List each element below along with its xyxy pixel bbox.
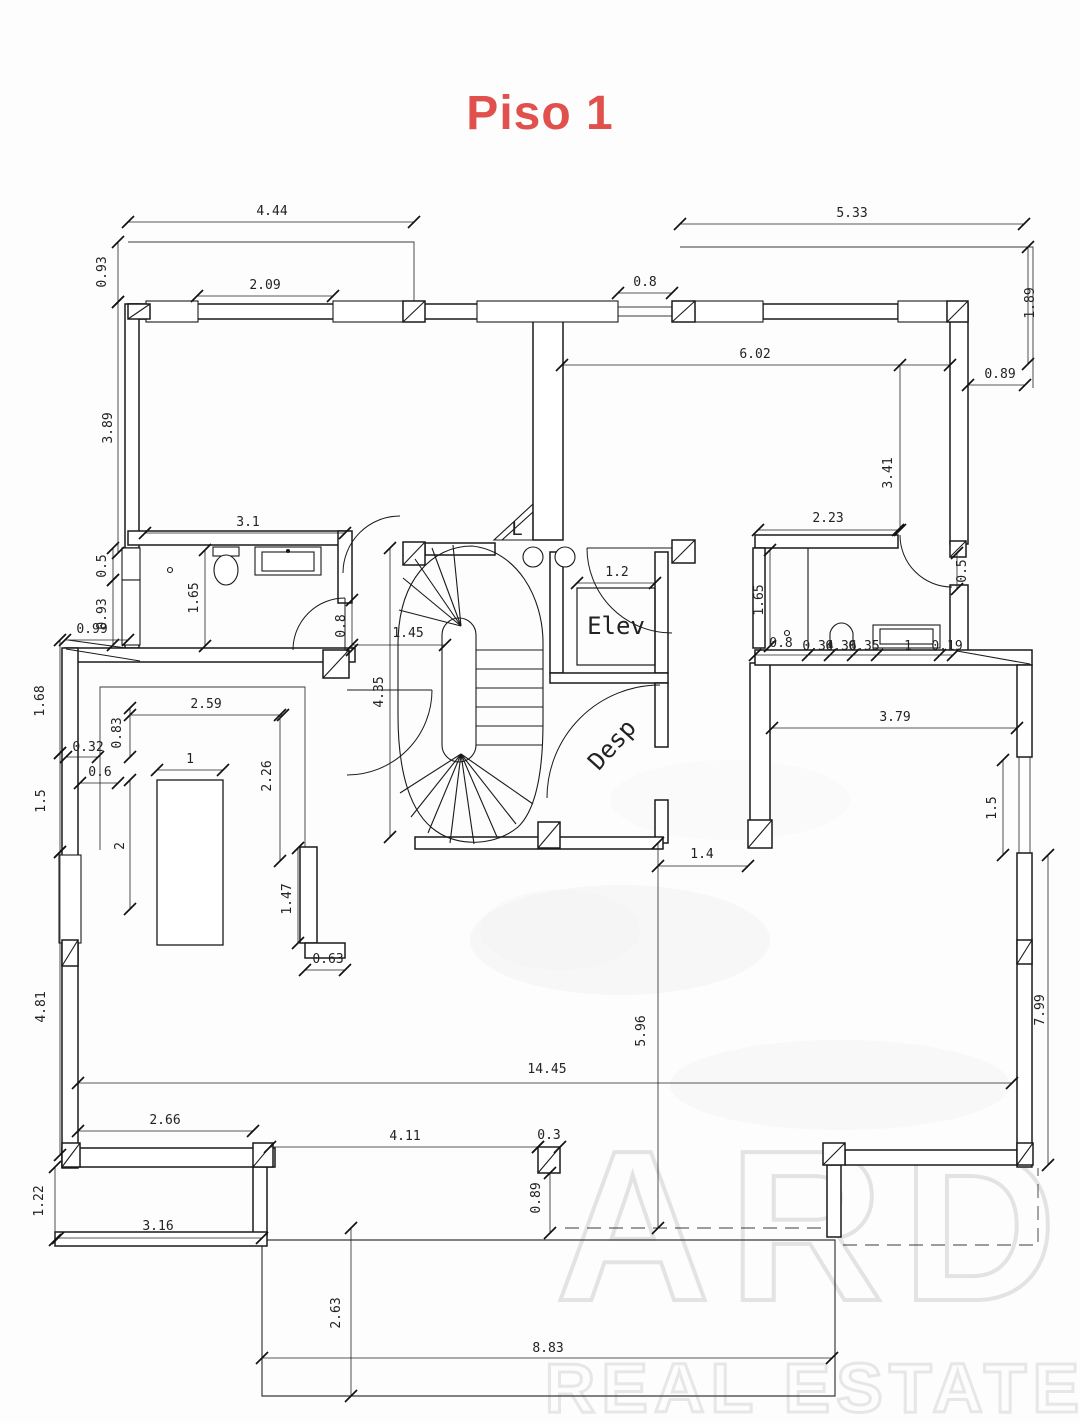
dimension-label: 0.35	[848, 639, 879, 654]
dimension-label: 0.89	[984, 367, 1015, 382]
wall-segment	[550, 673, 668, 683]
floor-drain-left	[168, 568, 173, 573]
window	[898, 301, 947, 322]
dimension-label: 2.09	[249, 278, 280, 293]
wall-segment	[550, 552, 563, 673]
window	[122, 548, 140, 580]
wall-segment	[533, 320, 563, 540]
wall-segment	[1017, 853, 1032, 1167]
dimension-label: 2.59	[190, 697, 221, 712]
door-arc-kitchen	[347, 690, 432, 775]
dimension-label: 1	[904, 639, 912, 654]
window	[333, 301, 403, 322]
window	[695, 301, 763, 322]
dimension-label: 4.11	[389, 1129, 420, 1144]
dimension-label: 1.5	[34, 789, 49, 812]
dimension-label: 0.32	[72, 740, 103, 755]
dimension-label: 1.89	[1023, 287, 1038, 318]
dimension-label: 2.26	[260, 760, 275, 791]
dimension-label: 2.63	[329, 1297, 344, 1328]
wall-segment	[125, 304, 139, 550]
dimension-label: 1.5	[985, 796, 1000, 819]
wall-segment	[755, 650, 1032, 665]
dimension-label: 1.47	[280, 883, 295, 914]
dimension-label: 0.19	[931, 639, 962, 654]
window	[146, 301, 198, 322]
dimension-label: 0.6	[88, 765, 111, 780]
floor-plan-page: Piso 1 ARD REAL ESTATE	[0, 0, 1080, 1423]
door-arc-bathroom-right	[900, 535, 952, 587]
dimension-label: 14.45	[527, 1062, 566, 1077]
dimension-label: 6.02	[739, 347, 770, 362]
dimension-label: 3.41	[881, 457, 896, 488]
dimension-label: 0.5	[955, 559, 970, 582]
fixtures	[157, 547, 940, 945]
dimension-label: 4.81	[34, 991, 49, 1022]
dimension-label: 2	[113, 842, 128, 850]
room-label-elevator: Elev	[587, 612, 645, 640]
dimension-label: 3.89	[101, 412, 116, 443]
wall-segment	[1017, 665, 1032, 757]
handrail-post	[523, 547, 543, 567]
wall-segment	[950, 304, 968, 544]
dimension-label: 3.16	[142, 1219, 173, 1234]
dimension-label: 1	[186, 752, 194, 767]
wall-segment	[755, 535, 898, 548]
dimension-label: 1.2	[605, 565, 628, 580]
dimension-label: 7.99	[1033, 994, 1048, 1025]
dimension-label: 4.44	[256, 204, 287, 219]
dimension-label: 0.8	[633, 275, 656, 290]
window	[477, 301, 618, 322]
wall-segment	[655, 552, 668, 673]
wall-segment	[62, 1148, 275, 1167]
dimension-label: 0.89	[529, 1182, 544, 1213]
dimension-label: 0.8	[769, 636, 792, 651]
wall-segment	[763, 304, 898, 319]
kitchen-island	[157, 780, 223, 945]
dimension-label: 1.65	[752, 584, 767, 615]
dimension-label: 4.35	[372, 676, 387, 707]
svg-text:REAL ESTATE: REAL ESTATE	[545, 1349, 1080, 1423]
wall-segment	[655, 683, 668, 747]
dimension-label: 3.79	[879, 710, 910, 725]
dimension-label: 0.8	[334, 614, 349, 637]
dimension-label: 5.96	[634, 1015, 649, 1046]
floor-plan-drawing: ARD REAL ESTATE	[0, 0, 1080, 1423]
dimension-label: 0.5	[95, 554, 110, 577]
vanity-left-basin	[262, 552, 314, 571]
window	[59, 855, 81, 943]
dimension-label: 1.45	[392, 626, 423, 641]
dimension-label: 0.3	[537, 1128, 560, 1143]
dimension-label: 2.23	[812, 511, 843, 526]
dimension-label: 1.65	[187, 582, 202, 613]
wall-segment	[750, 663, 770, 823]
dimension-label: 0.63	[312, 952, 343, 967]
wall-segment	[827, 1165, 841, 1237]
room-label-pantry: Desp	[582, 714, 641, 776]
toilet-left-bowl	[214, 555, 238, 585]
dimension-label: 1.68	[33, 685, 48, 716]
dimension-label: 1.22	[32, 1185, 47, 1216]
wall-segment	[253, 1167, 267, 1235]
window	[122, 580, 140, 645]
svg-text:ARD: ARD	[555, 1105, 1075, 1346]
dimension-label: 8.83	[532, 1341, 563, 1356]
dimension-label: 0.83	[110, 717, 125, 748]
dimension-label: 3.1	[236, 515, 259, 530]
wall-segment	[845, 1150, 1019, 1165]
dimension-label: 1.4	[690, 847, 714, 862]
dimension-label: 0.93	[95, 256, 110, 287]
room-label-stair-landing: L	[511, 518, 522, 540]
dimension-label: 5.33	[836, 206, 867, 221]
dimension-label: 0.99	[76, 622, 107, 637]
wall-segment	[55, 1232, 267, 1246]
floor-drain-right	[785, 631, 790, 636]
wall-segment	[338, 531, 352, 603]
dimension-label: 2.66	[149, 1113, 180, 1128]
wall-segment	[300, 847, 317, 943]
handrail-post	[555, 547, 575, 567]
